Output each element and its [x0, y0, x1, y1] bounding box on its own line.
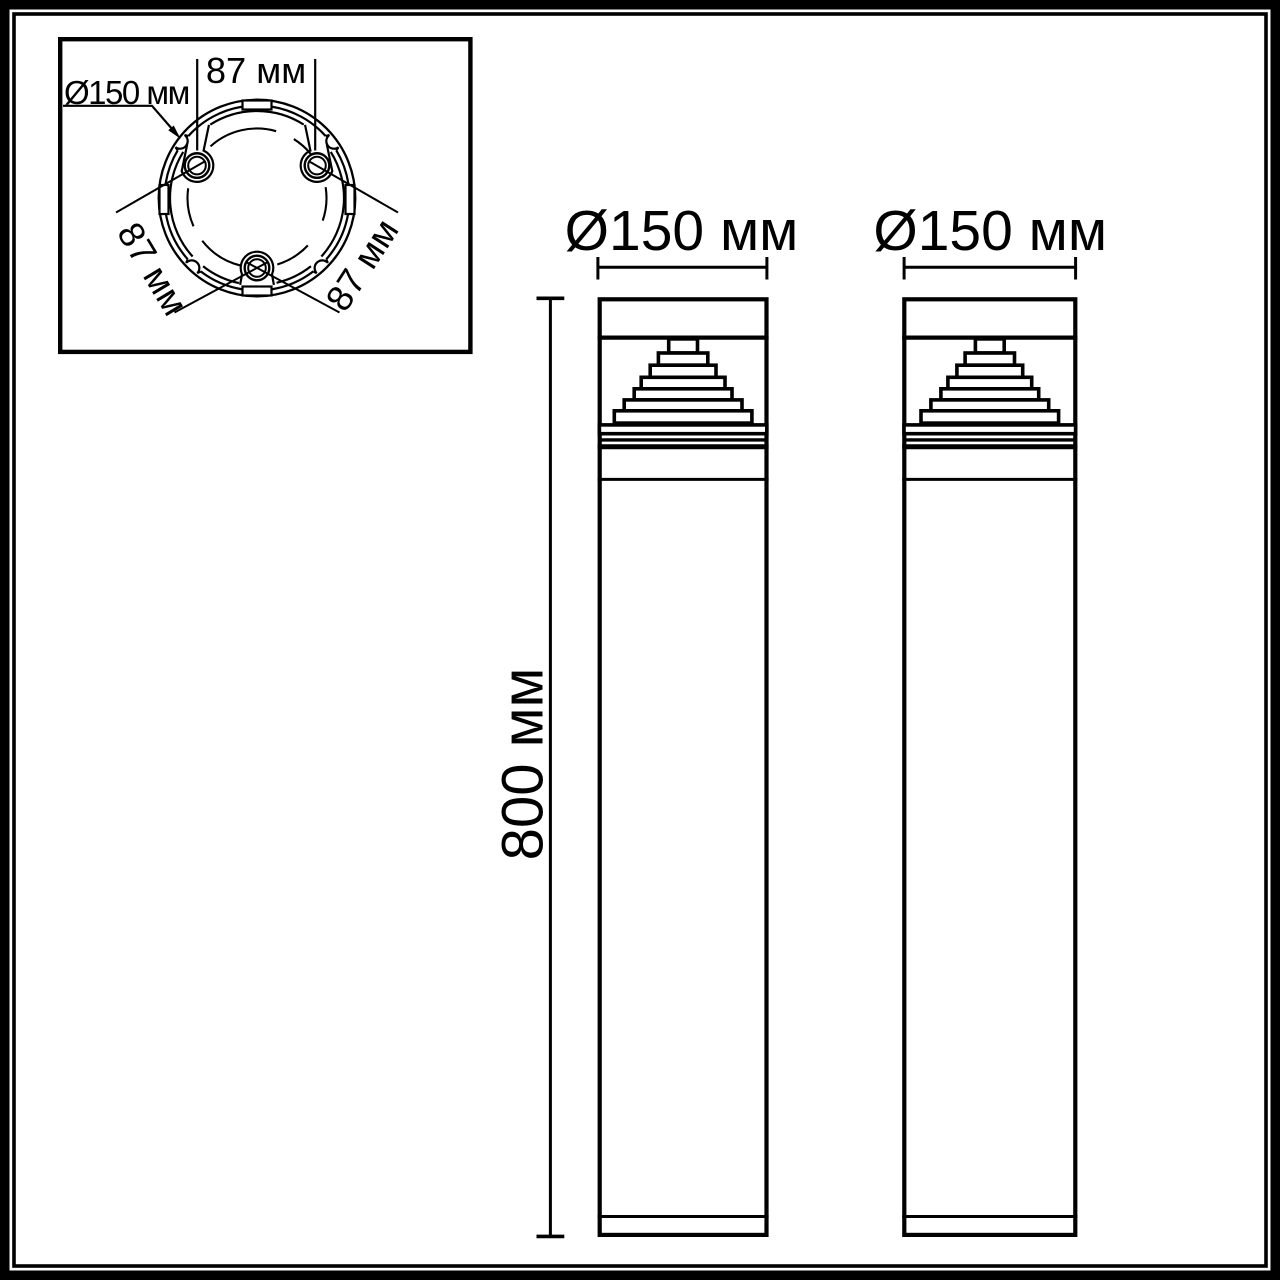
svg-text:Ø150 мм: Ø150 мм	[64, 74, 189, 111]
svg-text:87 мм: 87 мм	[206, 50, 306, 91]
svg-text:Ø150 мм: Ø150 мм	[565, 199, 799, 263]
svg-text:Ø150 мм: Ø150 мм	[873, 199, 1107, 263]
svg-text:800 мм: 800 мм	[491, 668, 556, 861]
